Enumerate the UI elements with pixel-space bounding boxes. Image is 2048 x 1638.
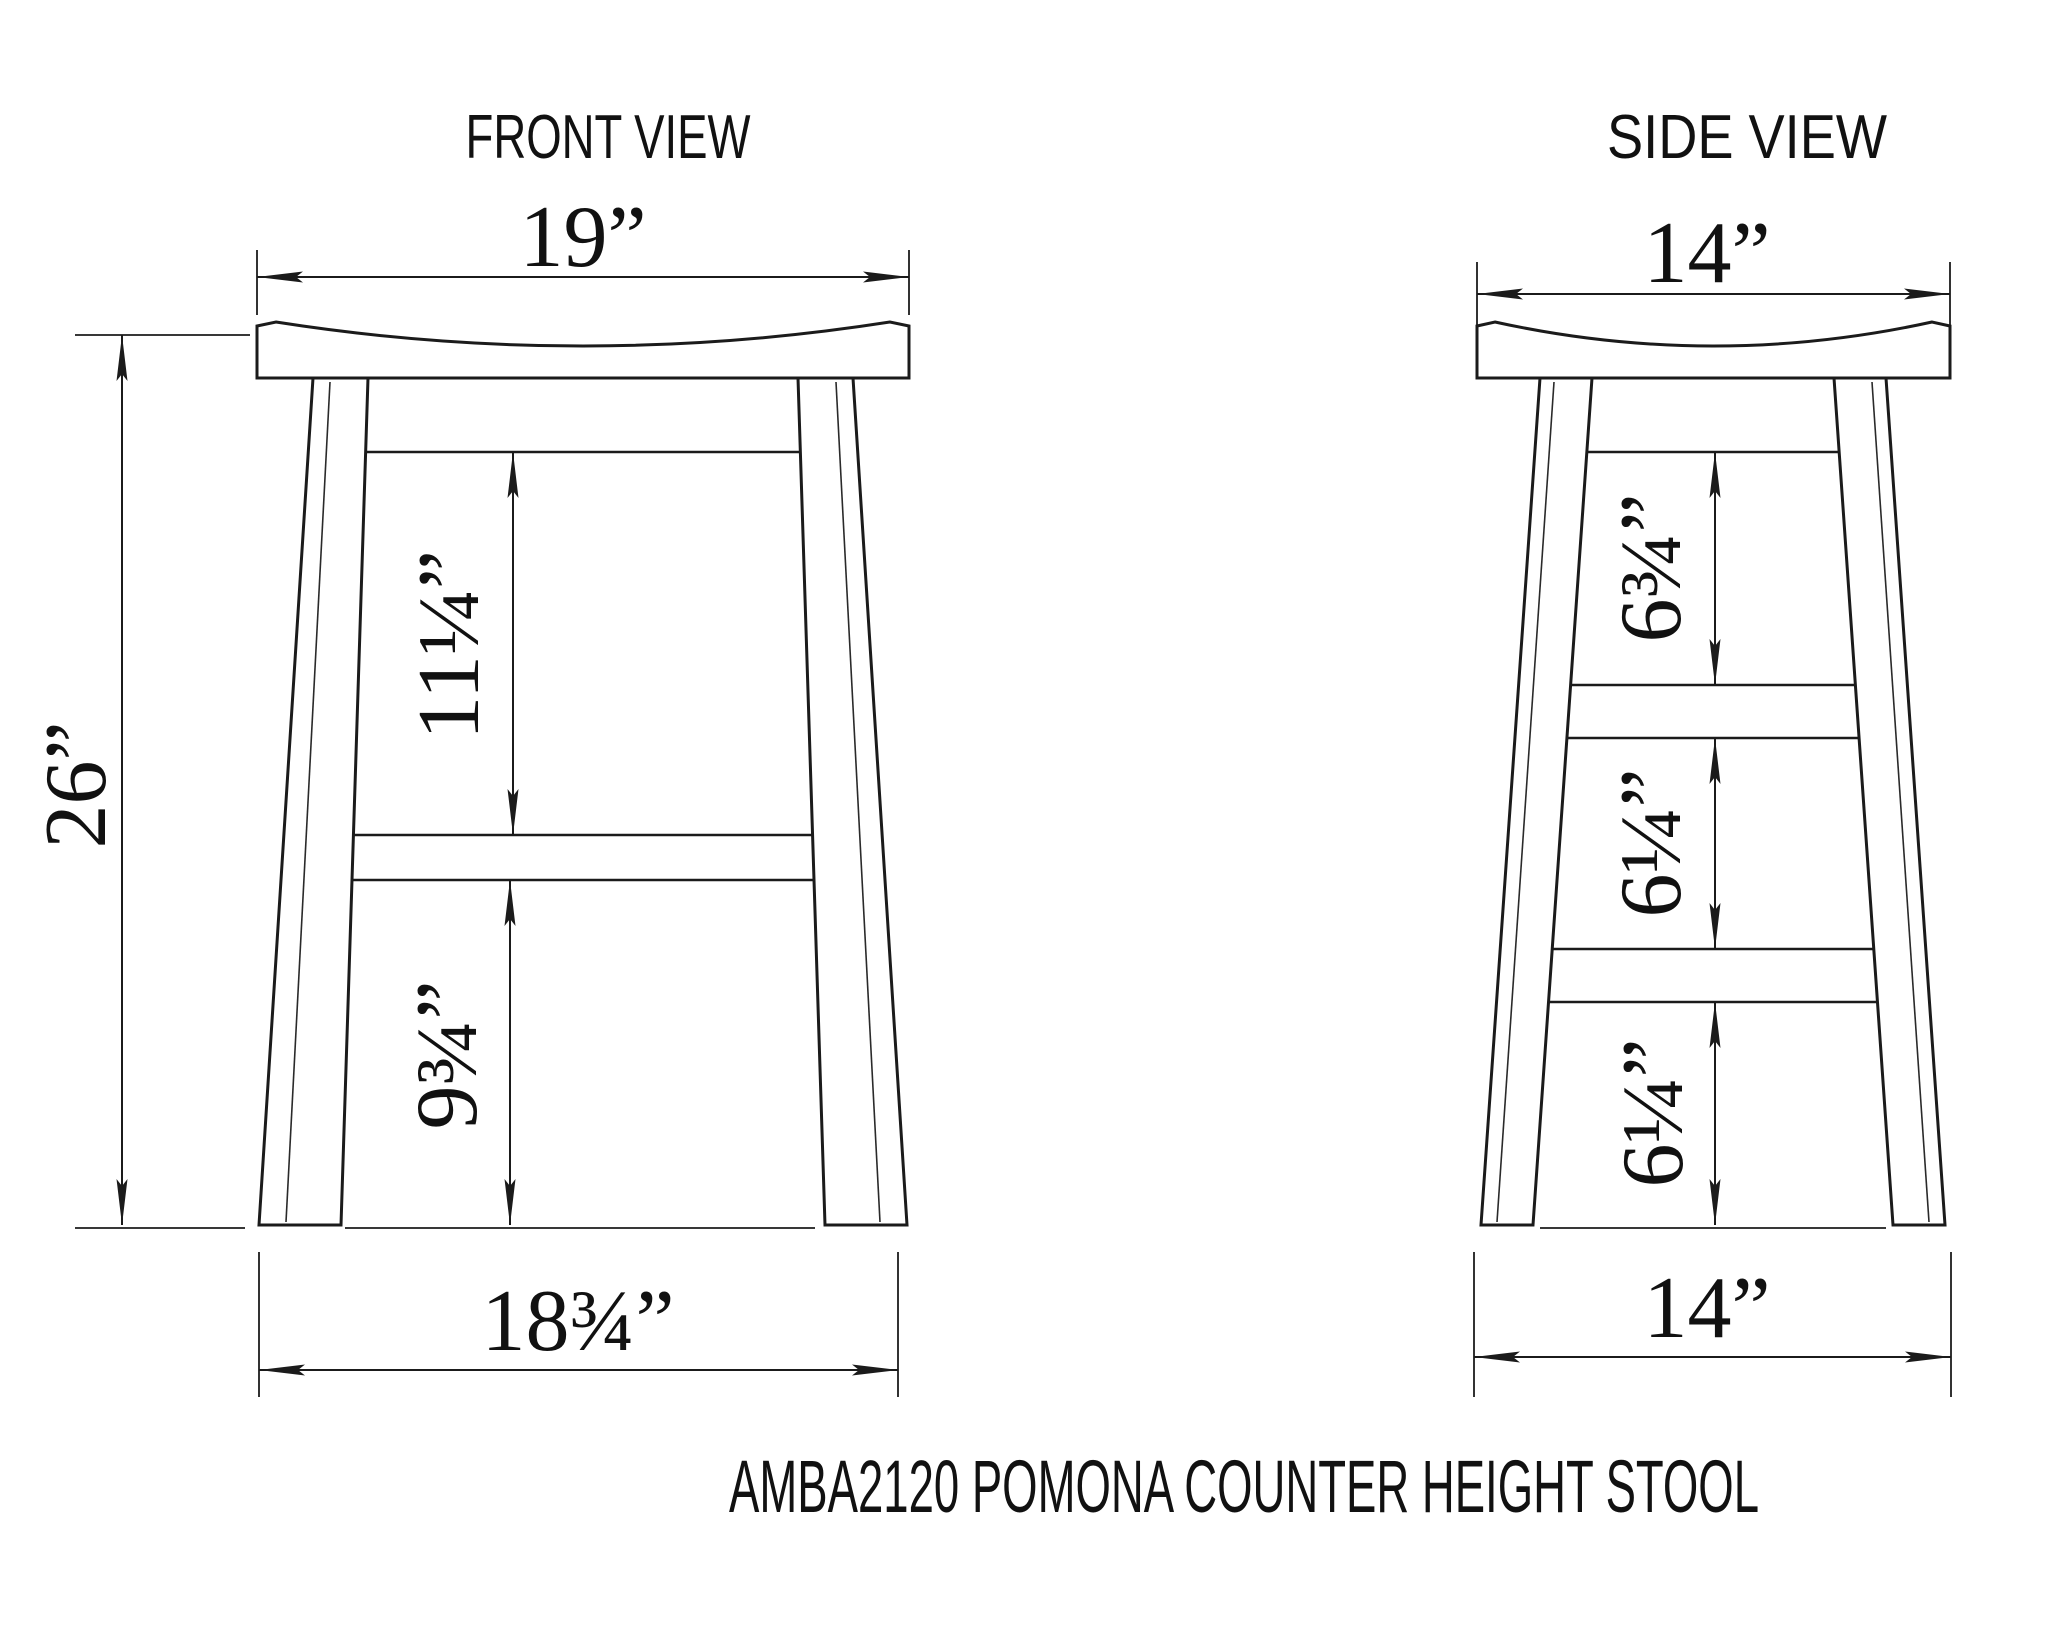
front-view-title: FRONT VIEW [466, 103, 751, 172]
front-height-dimension: 26” [28, 335, 250, 1228]
side-bottom-width-label: 14” [1643, 1260, 1770, 1357]
front-top-width-dimension: 19” [257, 189, 909, 315]
side-view-drawing: SIDE VIEW 14” [1474, 103, 1951, 1397]
front-rail-to-stretcher-dimension: 11¼” [401, 452, 513, 835]
side-lower-gap-label: 6¼” [1605, 1038, 1702, 1187]
front-height-label: 26” [28, 721, 125, 848]
side-top-width-label: 14” [1643, 205, 1770, 302]
front-rail-to-stretcher-label: 11¼” [401, 550, 498, 740]
side-top-width-dimension: 14” [1477, 205, 1950, 330]
front-bottom-width-label: 18¾” [481, 1273, 674, 1370]
front-stretcher-to-floor-label: 9¾” [399, 980, 496, 1129]
front-top-width-label: 19” [519, 189, 646, 286]
drawing-caption: AMBA2120 POMONA COUNTER HEIGHT STOOL [729, 1445, 1759, 1528]
front-stretcher-to-floor-dimension: 9¾” [399, 880, 510, 1225]
side-upper-gap-dimension: 6¾” [1603, 452, 1715, 685]
front-bottom-width-dimension: 18¾” [259, 1252, 898, 1397]
front-seat [257, 322, 909, 378]
side-upper-gap-label: 6¾” [1603, 493, 1700, 642]
side-middle-gap-label: 6¼” [1603, 768, 1700, 917]
drawing-sheet: FRONT VIEW 19” [0, 0, 2048, 1638]
side-right-leg [1834, 378, 1945, 1225]
side-bottom-width-dimension: 14” [1474, 1252, 1951, 1397]
drawing-canvas: FRONT VIEW 19” [0, 0, 2048, 1638]
front-left-leg [259, 378, 368, 1225]
side-view-title: SIDE VIEW [1607, 103, 1887, 172]
side-left-leg [1481, 378, 1592, 1225]
front-right-leg [798, 378, 907, 1225]
side-lower-gap-dimension: 6¼” [1605, 1002, 1715, 1225]
side-middle-gap-dimension: 6¼” [1603, 738, 1715, 949]
side-seat [1477, 322, 1950, 378]
front-view-drawing: FRONT VIEW 19” [28, 103, 909, 1397]
